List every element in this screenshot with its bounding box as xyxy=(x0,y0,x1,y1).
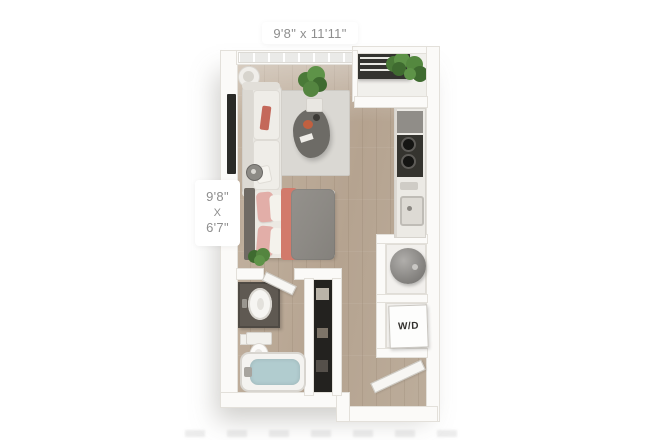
cropped-watermark-text xyxy=(185,430,470,437)
heater-cap xyxy=(412,264,418,270)
tv xyxy=(227,94,236,174)
tub-water xyxy=(250,359,300,385)
leaf xyxy=(404,68,416,80)
wall-bottom-left xyxy=(220,392,344,408)
window-plant xyxy=(297,66,329,112)
coffee-table xyxy=(293,108,330,158)
sofa-armrest xyxy=(242,82,280,90)
bed-foot-plant xyxy=(248,248,272,266)
lamp-shade xyxy=(243,71,254,82)
wall-bed-bath-left xyxy=(236,268,264,280)
sleeping-depth: 6'7" xyxy=(206,220,229,237)
tub-faucet xyxy=(244,367,252,377)
wall-closet-right xyxy=(332,278,342,396)
burner xyxy=(403,156,414,167)
kitchen-counter xyxy=(394,108,426,238)
floorplan-canvas: W/D 9'8" x 11'11" 9'8" X 6'7" xyxy=(0,0,650,440)
faucet xyxy=(242,299,247,308)
closet-box xyxy=(316,288,329,300)
refrigerator xyxy=(397,111,423,133)
table-decor-book xyxy=(299,133,313,143)
faucet xyxy=(407,206,412,211)
dimension-label-living-text: 9'8" x 11'11" xyxy=(273,26,346,41)
sleeping-width: 9'8" xyxy=(206,189,229,206)
wall-right xyxy=(426,46,440,422)
washer-dryer: W/D xyxy=(388,304,428,348)
window-glass xyxy=(238,52,354,63)
leaf xyxy=(254,255,265,266)
leaf xyxy=(303,81,319,97)
lamp-bulb xyxy=(251,169,256,174)
sofa xyxy=(242,82,282,200)
water-heater xyxy=(390,248,426,284)
sleeping-separator: X xyxy=(206,206,229,220)
washer-dryer-label: W/D xyxy=(398,321,419,333)
wall-kitchen-top xyxy=(354,96,428,108)
bathroom-vanity xyxy=(238,282,280,328)
wall-utility-bottom xyxy=(376,348,428,358)
wall-balcony-left xyxy=(352,50,358,102)
kitchen-sink xyxy=(400,196,424,226)
wall-window xyxy=(236,50,356,65)
wardrobe-closet xyxy=(314,280,332,392)
wall-bottom-step xyxy=(336,392,350,422)
closet-shoes xyxy=(317,328,328,338)
counter-item xyxy=(400,182,418,190)
dimension-label-sleeping: 9'8" X 6'7" xyxy=(195,180,240,246)
dimension-label-living: 9'8" x 11'11" xyxy=(262,22,358,44)
plant-pot xyxy=(306,98,323,112)
table-decor-vase xyxy=(313,114,320,121)
floor-lamp xyxy=(246,164,263,181)
duvet xyxy=(291,189,335,260)
bathtub xyxy=(240,352,306,392)
burner xyxy=(403,139,414,150)
sink-basin xyxy=(257,298,264,310)
wall-bottom-right xyxy=(336,406,438,422)
closet-bag xyxy=(316,360,328,372)
table-decor-orange xyxy=(303,120,313,129)
dimension-label-sleeping-text: 9'8" X 6'7" xyxy=(206,189,229,237)
wall-utility-mid xyxy=(376,294,428,303)
